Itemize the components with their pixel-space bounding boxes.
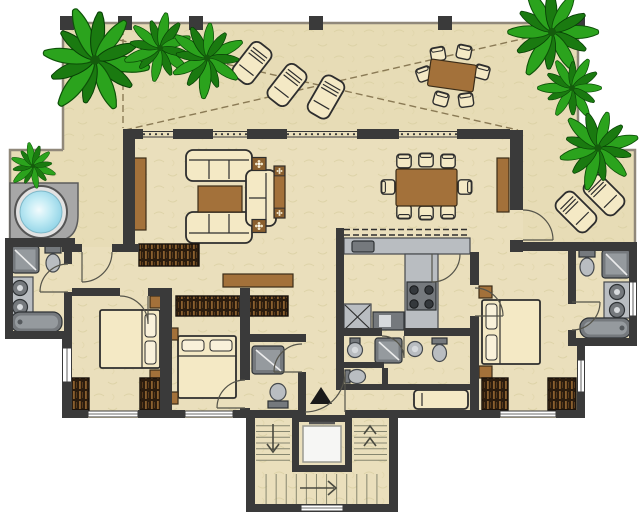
hall-closet bbox=[139, 244, 199, 266]
bed bbox=[100, 310, 160, 368]
kitchen-sink bbox=[352, 241, 374, 252]
toilet-wc bbox=[345, 370, 366, 384]
pillar bbox=[60, 16, 74, 30]
toilet bbox=[432, 338, 447, 362]
stove bbox=[407, 282, 436, 310]
window bbox=[63, 348, 72, 382]
dining-chair bbox=[419, 153, 433, 167]
nightstand bbox=[479, 366, 492, 378]
outdoor-chair bbox=[432, 91, 449, 108]
sofa-bottom bbox=[186, 212, 252, 243]
hot-tub-water bbox=[20, 191, 62, 233]
toilet bbox=[268, 384, 288, 409]
shower bbox=[252, 346, 284, 374]
dining-chair bbox=[441, 154, 455, 168]
wardrobe bbox=[140, 378, 162, 410]
outdoor-table bbox=[427, 59, 476, 92]
dining-chair bbox=[397, 205, 411, 219]
wardrobe bbox=[548, 378, 576, 410]
hot-tub-area bbox=[10, 183, 78, 241]
window bbox=[578, 360, 585, 392]
sofa-top bbox=[186, 150, 252, 181]
pillar bbox=[309, 16, 323, 30]
bed bbox=[178, 336, 236, 398]
shower bbox=[602, 250, 630, 278]
plant-table bbox=[252, 220, 266, 233]
outdoor-chair bbox=[458, 92, 474, 107]
closet-shelving bbox=[176, 296, 288, 316]
dining-chair bbox=[441, 205, 455, 219]
dresser bbox=[223, 274, 293, 287]
sideboard bbox=[497, 158, 509, 212]
window bbox=[630, 282, 637, 316]
bed bbox=[482, 300, 540, 364]
window bbox=[88, 411, 138, 417]
shower bbox=[375, 338, 402, 363]
bathtub bbox=[580, 318, 631, 338]
dining-chair bbox=[458, 180, 472, 194]
coffee-table bbox=[198, 186, 242, 212]
outdoor-chair bbox=[456, 44, 473, 60]
shower bbox=[12, 246, 39, 273]
pedestal-sink bbox=[348, 338, 363, 358]
window bbox=[301, 505, 343, 511]
washer bbox=[344, 304, 371, 330]
dining-chair bbox=[397, 154, 411, 168]
loveseat bbox=[246, 170, 276, 226]
prep-counter bbox=[373, 312, 404, 330]
window bbox=[500, 411, 556, 417]
elevator-car bbox=[303, 426, 341, 462]
dining-table bbox=[396, 169, 457, 206]
plant-table bbox=[274, 166, 285, 176]
sink bbox=[408, 342, 423, 357]
pillar bbox=[438, 16, 452, 30]
wardrobe bbox=[482, 378, 508, 410]
plant-table bbox=[274, 208, 285, 218]
window bbox=[185, 411, 233, 417]
dining-chair bbox=[381, 180, 395, 194]
toilet bbox=[579, 250, 595, 276]
plant-table bbox=[252, 158, 266, 171]
floor-plan-page bbox=[0, 0, 640, 516]
bathtub bbox=[11, 312, 62, 332]
dining-chair bbox=[419, 206, 433, 220]
floor-plan-canvas bbox=[0, 0, 640, 516]
